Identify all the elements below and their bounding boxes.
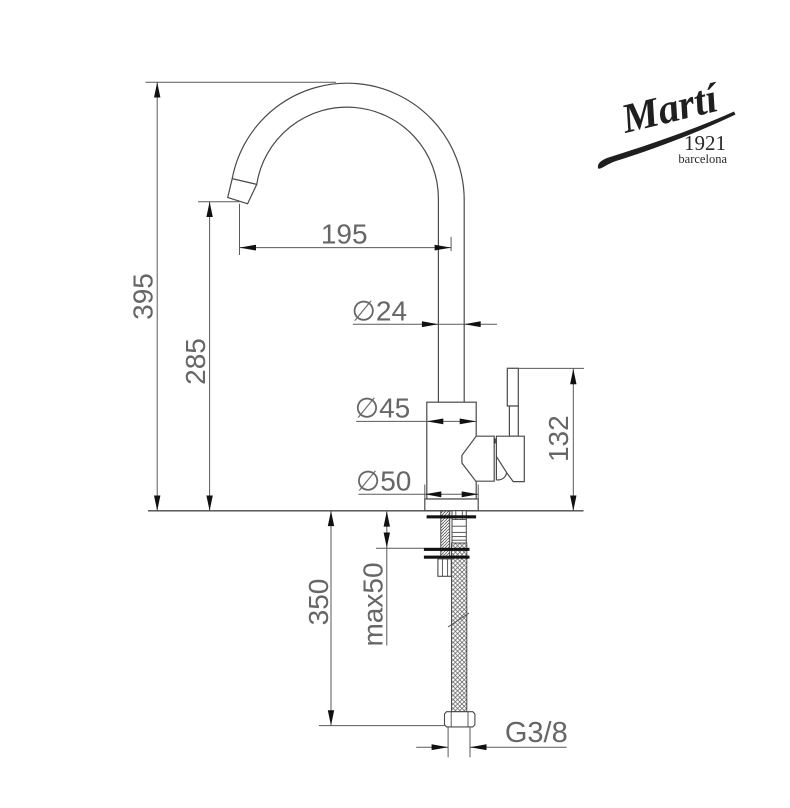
svg-text:∅50: ∅50	[356, 466, 412, 497]
svg-text:max50: max50	[357, 562, 388, 646]
svg-text:285: 285	[180, 338, 211, 385]
svg-text:132: 132	[543, 415, 574, 462]
svg-text:∅45: ∅45	[355, 393, 411, 424]
svg-text:350: 350	[303, 579, 334, 626]
svg-text:195: 195	[321, 219, 368, 250]
svg-text:395: 395	[128, 273, 159, 320]
svg-text:barcelona: barcelona	[678, 152, 727, 166]
svg-text:∅24: ∅24	[352, 296, 408, 327]
svg-text:G3/8: G3/8	[505, 717, 568, 749]
